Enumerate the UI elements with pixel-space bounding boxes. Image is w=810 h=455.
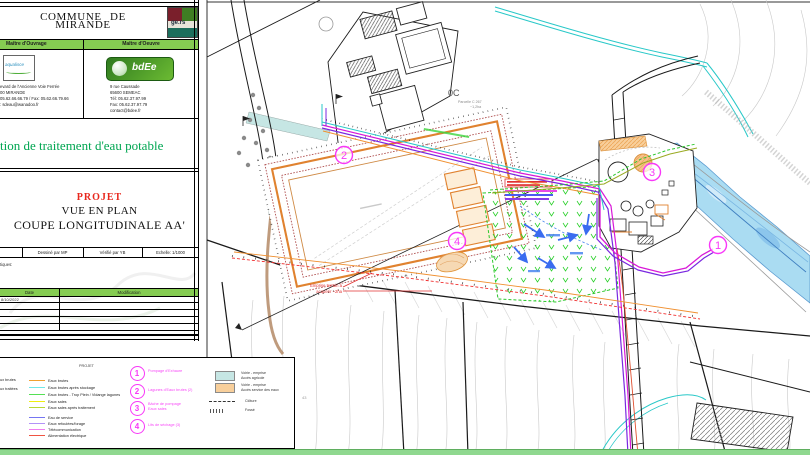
moa-header-cell: Maître d'Ouvrage xyxy=(0,39,83,50)
divider-line xyxy=(0,2,199,3)
divider-line xyxy=(83,39,84,118)
buildings xyxy=(319,2,452,131)
legend-line-label: Eaux brutes - Trop Plein / Vidange lagun… xyxy=(48,393,120,397)
parcel-note-line1: Parcelle C 267 xyxy=(458,100,482,104)
legend-fosse-label: Fossé xyxy=(245,408,255,413)
legend-area-label-line: Accès service des eaux xyxy=(241,388,279,393)
marker-2: 2 xyxy=(341,150,347,162)
moa-address-line: : sdeau@wanadoo.fr xyxy=(0,102,69,108)
parcel-note-line2: ~1,2ha xyxy=(470,105,481,109)
legend-line-swatch xyxy=(29,423,45,425)
moa-logo-text: aqualisce xyxy=(5,62,24,67)
project-label: PROJET xyxy=(0,192,199,203)
legend-line-item: Eaux brutes après stockage xyxy=(29,384,95,391)
legend-marker-4: 4 xyxy=(130,419,145,434)
legend-area-label-line: Voirie - emprise xyxy=(241,371,266,376)
divider-line xyxy=(0,118,199,119)
existing-building xyxy=(691,403,793,452)
title-block: COMMUNE DE MIRANDE ge.rs Maître d'Ouvrag… xyxy=(0,0,199,342)
ditch xyxy=(600,395,706,455)
legend-line-label: Eau de service xyxy=(48,416,73,420)
divider-line xyxy=(0,330,199,331)
legend-cloture-swatch xyxy=(209,401,235,402)
contour-elevation-label: 43 xyxy=(302,395,307,400)
moe-address: 9 rue Caussade 65600 SEMEAC Tél: 05.62.3… xyxy=(110,84,147,114)
legend-project-header: PROJET xyxy=(79,364,94,368)
legend-line-swatch xyxy=(29,387,45,389)
existing-item-label: aux brutes xyxy=(0,378,16,382)
drawing-sheet: 0C Parcelle C 267 ~1,2ha Emprise terrain… xyxy=(0,0,810,455)
divider-line xyxy=(0,247,199,248)
commune-line2: MIRANDE xyxy=(0,21,166,29)
moe-address-line: Tél: 05.62.37.97.99 xyxy=(110,96,147,102)
legend-line-label: Eaux sales après traitement xyxy=(48,406,95,410)
legend-line-swatch xyxy=(29,401,45,403)
legend-marker-2-label: Lagunes d'Eaux brutes (2) xyxy=(148,388,192,393)
zone-label: 0C xyxy=(448,88,460,98)
moe-address-line: Fax: 05.62.37.97.79 xyxy=(110,102,147,108)
moa-address: evard de l'Ancienne Voie Ferrée 00 MIRAN… xyxy=(0,84,69,108)
legend-marker-2: 2 xyxy=(130,384,145,399)
legend-marker-4-label: Lits de séchage (3) xyxy=(148,423,180,428)
divider-line xyxy=(0,334,199,336)
legend-line-item: Alimentation électrique xyxy=(29,432,86,439)
acquire-note-line1: Emprise terrain à xyxy=(310,283,343,288)
legend-fosse-swatch xyxy=(210,409,225,413)
divider-line xyxy=(198,0,199,341)
table-modification-header: Modification xyxy=(59,288,199,297)
main-title: tion de traitement d'eau potable xyxy=(0,138,163,154)
moe-logo-text: bdEe xyxy=(132,62,156,73)
acquire-note-line2: acquérir ~2ha xyxy=(316,289,342,294)
legend-area-swatch-agricole xyxy=(215,371,235,381)
legend-marker-1-label: Pompage d'Exhaure xyxy=(148,369,182,374)
commune-title: COMMUNE DE MIRANDE xyxy=(0,13,166,29)
existing-item-label: aux traitées xyxy=(0,387,18,391)
divider-line xyxy=(0,302,199,303)
moa-logo: aqualisce xyxy=(3,55,35,81)
legend-line-item: Eaux sales après traitement xyxy=(29,404,95,411)
legend-line-swatch xyxy=(29,380,45,382)
legend-marker-3-label: Bâche de pompage Eaux sales xyxy=(148,402,188,411)
legend-marker-1: 1 xyxy=(130,366,145,381)
logo-wave xyxy=(6,70,31,74)
legend-area-label-agricole: Voirie - emprise Accès agricole xyxy=(241,371,266,380)
legend-line-label: Alimentation électrique xyxy=(48,434,86,438)
legend-line-label: Télécommunication xyxy=(48,428,81,432)
divider-line xyxy=(0,309,199,310)
view-label: VUE EN PLAN xyxy=(0,205,199,217)
legend-line-swatch xyxy=(29,394,45,396)
legend-line-item: Eaux brutes - Trop Plein / Vidange lagun… xyxy=(29,391,120,398)
marker-4: 4 xyxy=(454,236,460,248)
legend-line-label: Eaux brutes xyxy=(48,379,68,383)
moe-header-cell: Maître d'Oeuvre xyxy=(83,39,199,50)
divider-line xyxy=(0,168,199,169)
divider-line xyxy=(0,323,199,324)
bottom-green-strip xyxy=(0,449,810,455)
logo-sphere xyxy=(112,61,127,76)
marker-3: 3 xyxy=(649,167,655,179)
benchmark-flag xyxy=(336,94,343,99)
moe-logo: bdEe xyxy=(106,57,174,81)
legend-line-label: Eaux sales xyxy=(48,400,67,404)
divider-line xyxy=(194,0,195,341)
legend-panel: aux brutes aux traitées PROJET Eaux brut… xyxy=(0,357,295,449)
divider-line xyxy=(0,339,199,340)
divider-line xyxy=(0,316,199,317)
legend-line-label: Eaux refoulées/forage xyxy=(48,422,85,426)
table-first-date: 8/10/2022 xyxy=(1,297,19,302)
legend-line-swatch xyxy=(29,435,45,437)
marker-1: 1 xyxy=(715,240,721,252)
legend-line-item: Eaux brutes xyxy=(29,377,68,384)
legend-line-swatch xyxy=(29,407,45,409)
legend-line-label: Eaux brutes après stockage xyxy=(48,386,95,390)
legend-area-swatch-service xyxy=(215,383,235,393)
divider-line xyxy=(0,171,199,172)
legend-cloture-label: Clôture xyxy=(245,399,257,404)
moa-address-line: 05.62.66.66.79 / Fax: 05.62.66.79.66 xyxy=(0,96,69,102)
legend-marker-3: 3 xyxy=(130,401,145,416)
legend-area-label-service: Voirie - emprise Accès service des eaux xyxy=(241,383,279,392)
legend-area-label-line: Accès agricole xyxy=(241,376,266,381)
roadside-trees xyxy=(237,93,272,167)
legend-line-swatch xyxy=(29,429,45,431)
section-label: COUPE LONGITUDINALE AA' xyxy=(0,218,199,233)
legend-line-swatch xyxy=(29,417,45,419)
moe-address-line: contact@bdee.fr xyxy=(110,108,147,114)
